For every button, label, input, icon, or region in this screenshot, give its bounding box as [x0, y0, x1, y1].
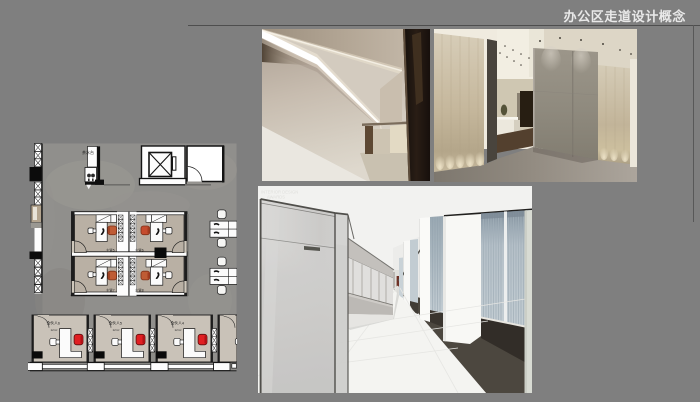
svg-text:合伙人5: 合伙人5	[109, 320, 123, 325]
svg-text:AWARDS: AWARDS	[267, 195, 285, 200]
svg-text:茶水台: 茶水台	[82, 149, 94, 155]
svg-text:主管8: 主管8	[135, 288, 144, 293]
svg-text:主管5: 主管5	[106, 247, 115, 252]
svg-text:12m²: 12m²	[113, 328, 120, 332]
svg-text:12m²: 12m²	[175, 328, 182, 332]
svg-text:12m²: 12m²	[51, 328, 58, 332]
svg-text:合伙人6: 合伙人6	[47, 320, 61, 325]
svg-text:主管6: 主管6	[135, 247, 144, 252]
svg-text:主管7: 主管7	[106, 288, 115, 293]
svg-text:合伙人4: 合伙人4	[171, 320, 185, 325]
